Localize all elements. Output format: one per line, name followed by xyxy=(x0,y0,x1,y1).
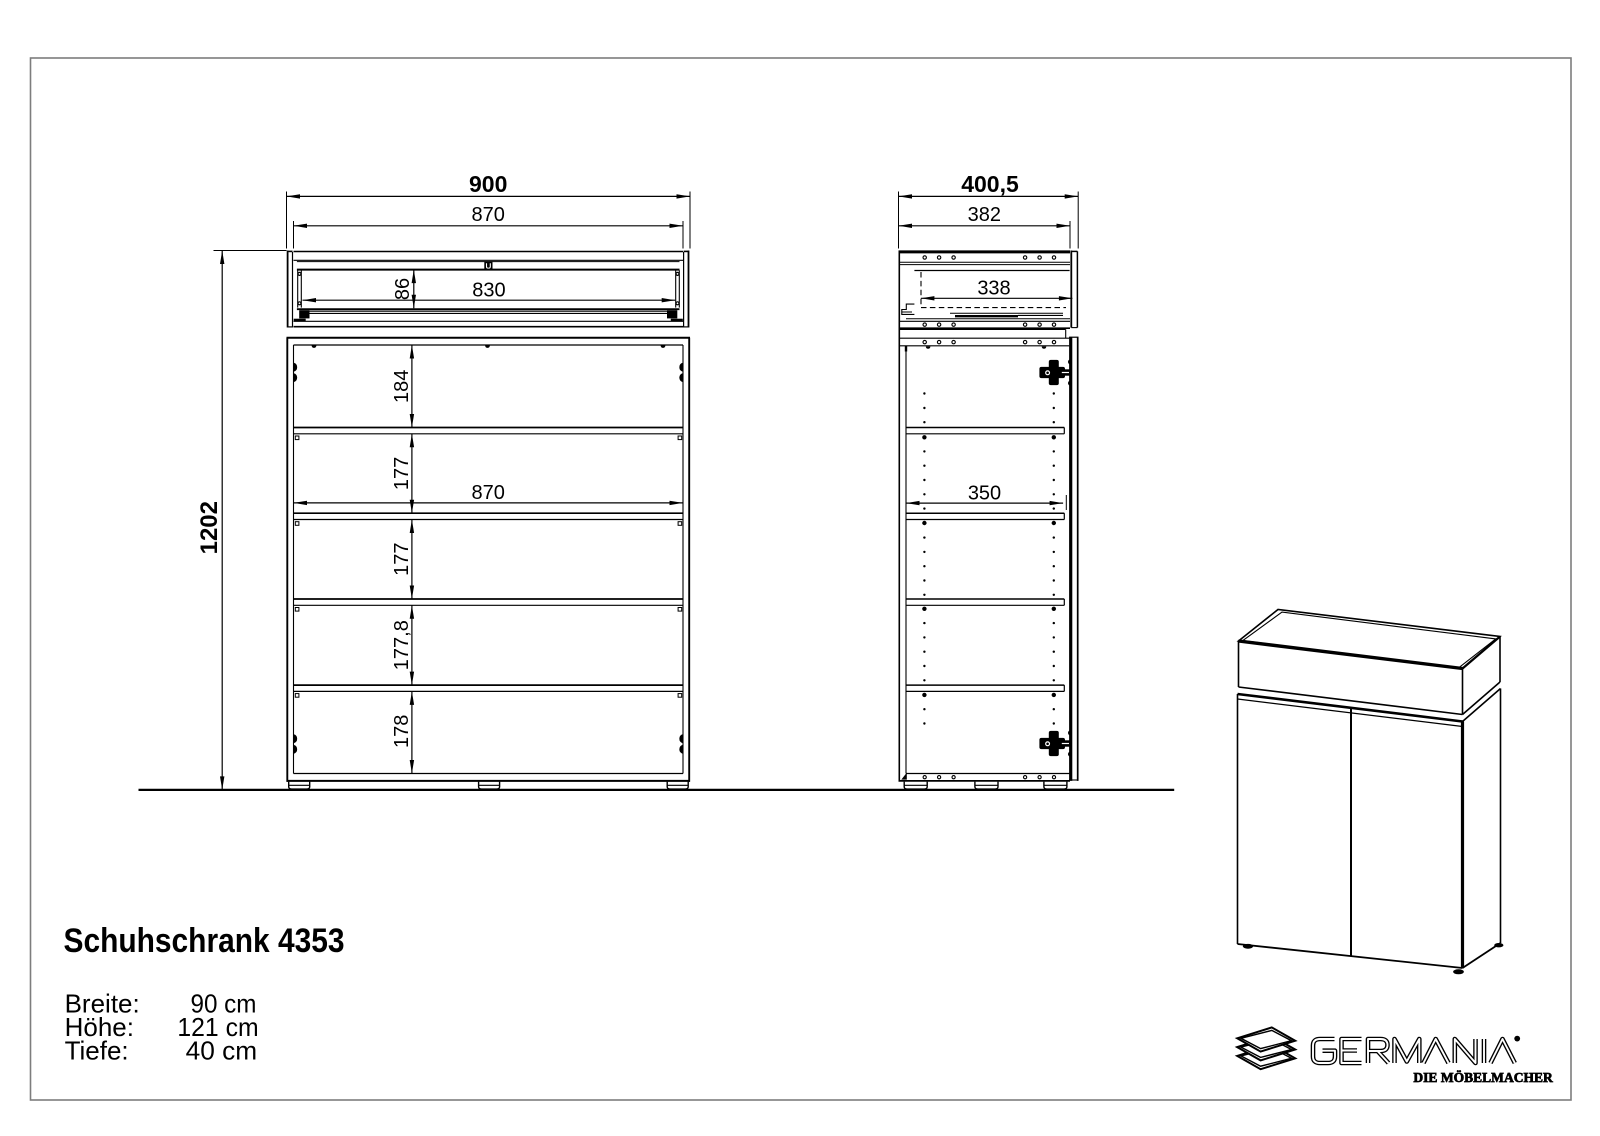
svg-text:1202: 1202 xyxy=(196,501,223,554)
svg-text:178: 178 xyxy=(391,715,413,748)
svg-text:830: 830 xyxy=(472,279,505,301)
svg-text:Tiefe:: Tiefe: xyxy=(65,1035,129,1065)
svg-text:870: 870 xyxy=(472,482,505,504)
svg-text:184: 184 xyxy=(391,370,413,403)
svg-text:338: 338 xyxy=(977,277,1010,299)
svg-text:900: 900 xyxy=(469,171,507,197)
svg-text:350: 350 xyxy=(968,482,1001,504)
svg-text:870: 870 xyxy=(472,204,505,226)
svg-text:177: 177 xyxy=(391,457,413,490)
svg-text:382: 382 xyxy=(968,204,1001,226)
svg-text:86: 86 xyxy=(392,278,414,300)
svg-text:DIE MÖBELMACHER: DIE MÖBELMACHER xyxy=(1413,1070,1553,1085)
svg-text:400,5: 400,5 xyxy=(961,171,1019,197)
svg-text:177: 177 xyxy=(391,543,413,576)
svg-text:Schuhschrank 4353: Schuhschrank 4353 xyxy=(64,922,345,960)
svg-text:40 cm: 40 cm xyxy=(186,1035,258,1065)
svg-text:177,8: 177,8 xyxy=(391,620,413,670)
